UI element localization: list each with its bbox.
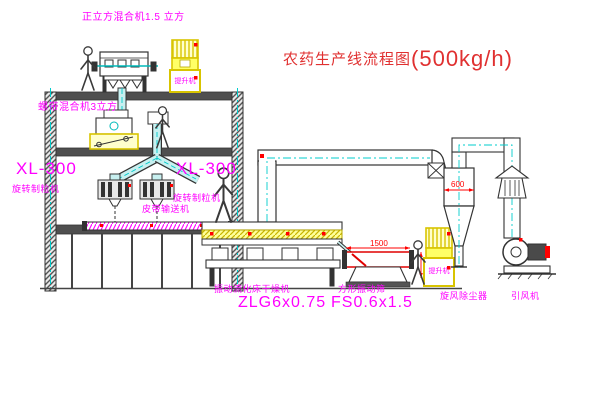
elevator-bottom-label: 提升机: [429, 266, 450, 275]
duct-centerline: [267, 158, 430, 222]
fan-motor: [528, 244, 546, 260]
sieve-body: [346, 252, 410, 267]
dryer-model-label: ZLG6x0.75: [238, 295, 326, 312]
ribbon-mixer-label: 螺带混合机3立方: [38, 103, 118, 114]
granulator-right: [140, 174, 174, 222]
induced-draft-fan: [498, 238, 556, 279]
bucket-elevator-bottom: 提升机: [424, 228, 454, 286]
flow-diagram-canvas: 提升机: [0, 0, 600, 403]
elevator-bottom-head: [426, 228, 452, 248]
dryer-deck: [202, 230, 342, 239]
fan-label: 引风机: [511, 292, 540, 301]
granulator-left: [98, 174, 132, 222]
sieve-model-label: FS0.6x1.5: [331, 295, 413, 312]
cyclone-label: 旋风除尘器: [440, 292, 488, 301]
belt-conveyor-label: 皮带输送机: [142, 205, 190, 214]
rain-cap: [498, 178, 526, 198]
main-duct: [258, 150, 446, 222]
elevator-top-label: 提升机: [175, 76, 196, 85]
sieve-length-dim: 1500: [370, 239, 388, 248]
bucket-elevator-top: 提升机: [170, 40, 200, 92]
granulator-right-model: XL-300: [176, 160, 237, 178]
roof-slab: [45, 92, 243, 100]
cube-mixer-label: 正立方混合机1.5 立方: [82, 13, 185, 24]
diagram-title: 农药生产线流程图(500kg/h): [283, 46, 513, 72]
elevator-top-head: [172, 40, 198, 58]
cyclone-diameter-dim: 600: [451, 180, 465, 189]
fluid-bed-dryer: [202, 222, 354, 286]
mid-slab: [45, 148, 243, 156]
granulator-right-name: 旋转制粒机: [173, 194, 221, 203]
platform-legs: [72, 234, 220, 288]
title-name: 农药生产线流程图: [283, 51, 411, 68]
granulator-left-model: XL-300: [16, 160, 77, 178]
granulator-left-name: 旋转制粒机: [12, 185, 60, 194]
fan-volute: [503, 239, 529, 265]
title-capacity: (500kg/h): [411, 46, 513, 71]
